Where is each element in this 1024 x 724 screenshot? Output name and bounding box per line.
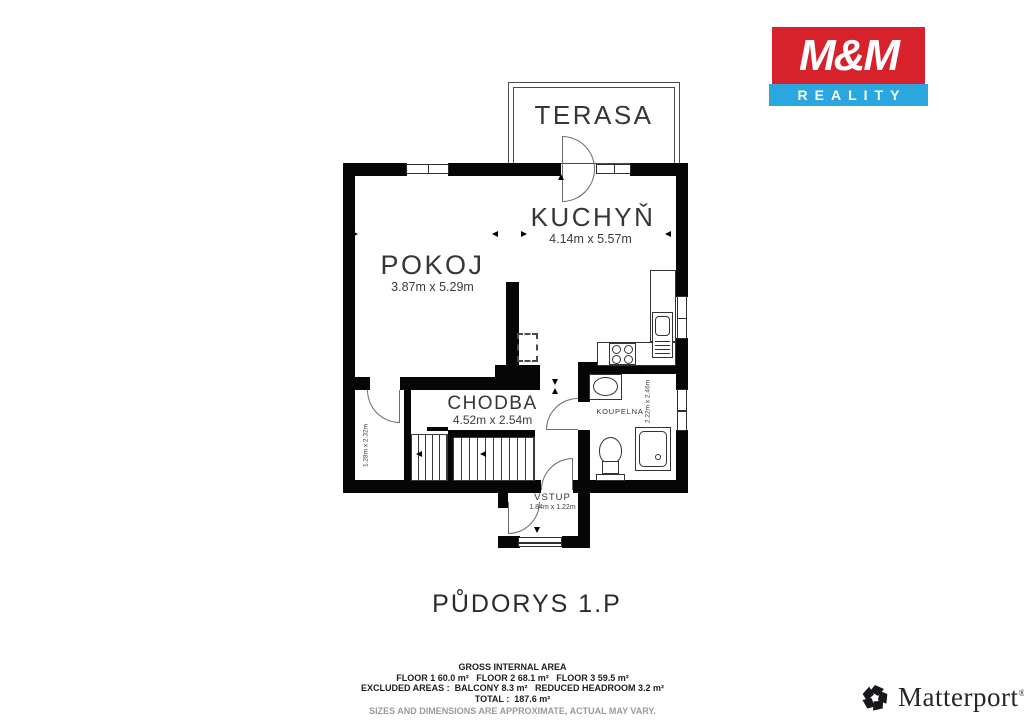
stove-burner xyxy=(612,355,621,364)
window-pokoj xyxy=(406,164,449,174)
room-dims-pokoj: 3.87m x 5.29m xyxy=(355,280,510,294)
mm-logo-blue-band: REALITY xyxy=(769,84,928,106)
wall xyxy=(343,480,541,493)
entry-door-threshold xyxy=(518,537,562,547)
summary-floors: FLOOR 1 60.0 m² FLOOR 2 68.1 m² FLOOR 3 … xyxy=(250,673,775,684)
washbasin-bowl xyxy=(593,377,618,396)
room-label-vstup: VSTUP xyxy=(515,492,590,503)
window-mullion xyxy=(428,165,430,173)
stove-burner xyxy=(624,345,633,354)
wall xyxy=(448,430,535,437)
mm-logo-red-box: M&M xyxy=(772,27,925,84)
window-koupelna-right xyxy=(677,389,687,431)
window-kuchyn-right xyxy=(677,296,687,339)
window-mullion xyxy=(614,165,616,173)
wall xyxy=(573,480,688,493)
shower-tray xyxy=(639,431,667,467)
wall xyxy=(343,163,355,493)
room-dims-satna: 1.28m x 2.32m xyxy=(363,406,370,486)
summary-disclaimer: SIZES AND DIMENSIONS ARE APPROXIMATE, AC… xyxy=(250,706,775,717)
shower-drain xyxy=(655,454,661,460)
dimension-arrow xyxy=(352,231,358,237)
stair-handrail xyxy=(427,427,448,431)
matterport-wordmark: Matterport® xyxy=(898,682,1024,713)
door-threshold-line xyxy=(519,542,561,544)
stairs-lower-flight xyxy=(411,434,448,481)
dimension-arrow xyxy=(492,231,498,237)
wall xyxy=(578,430,590,493)
window-mullion xyxy=(678,410,686,412)
summary-heading: GROSS INTERNAL AREA xyxy=(250,662,775,673)
kitchen-sink-drainboard xyxy=(655,340,670,354)
floor-plan-page: M&M REALITY xyxy=(0,0,1024,724)
summary-total: TOTAL : 187.6 m² xyxy=(250,694,775,705)
door-arc-vstup xyxy=(541,458,573,490)
wall xyxy=(343,377,370,390)
matterport-icon xyxy=(858,681,892,715)
toilet-tank xyxy=(602,461,619,474)
stairs-direction-arrow xyxy=(480,451,486,457)
plan-title: PŮDORYS 1.P xyxy=(362,590,692,619)
room-label-terasa: TERASA xyxy=(508,100,680,131)
stove-burner xyxy=(612,345,621,354)
mm-reality-text: REALITY xyxy=(791,87,907,103)
appliance-dashed-outline xyxy=(517,333,538,362)
mm-logo-text: M&M xyxy=(799,31,898,81)
wall xyxy=(498,536,520,548)
stairs-direction-arrow xyxy=(416,451,422,457)
room-dims-kuchyn: 4.14m x 5.57m xyxy=(508,232,673,246)
wall xyxy=(498,492,508,508)
matterport-name: Matterport xyxy=(898,682,1018,712)
room-label-pokoj: POKOJ xyxy=(355,250,510,281)
kitchen-sink-basin xyxy=(655,316,670,336)
room-dims-vstup: 1.84m x 1.22m xyxy=(515,504,590,511)
wall xyxy=(448,163,561,176)
toilet-base xyxy=(596,474,625,481)
stairs-upper-flight xyxy=(453,437,535,481)
window-mullion xyxy=(678,318,686,320)
summary-excluded: EXCLUDED AREAS : BALCONY 8.3 m² REDUCED … xyxy=(250,683,775,694)
registered-mark: ® xyxy=(1018,688,1024,698)
wall xyxy=(404,390,411,483)
area-summary: GROSS INTERNAL AREA FLOOR 1 60.0 m² FLOO… xyxy=(250,662,775,716)
room-label-kuchyn: KUCHYŇ xyxy=(508,202,678,233)
wall xyxy=(400,377,540,390)
door-arc-satna xyxy=(367,390,400,423)
stove-burner xyxy=(624,355,633,364)
door-hinge-marker xyxy=(558,174,564,180)
window-kuchyn-top xyxy=(596,164,631,174)
room-dims-koupelna: 2.22m x 2.46m xyxy=(645,362,652,442)
toilet-bowl xyxy=(599,437,622,464)
room-label-chodba: CHODBA xyxy=(420,393,565,415)
dimension-arrow xyxy=(552,379,558,385)
dimension-arrow xyxy=(534,527,540,533)
wall xyxy=(562,536,587,548)
wall-divider-pokoj-kuchyn xyxy=(506,282,519,377)
room-dims-chodba: 4.52m x 2.54m xyxy=(420,413,565,427)
